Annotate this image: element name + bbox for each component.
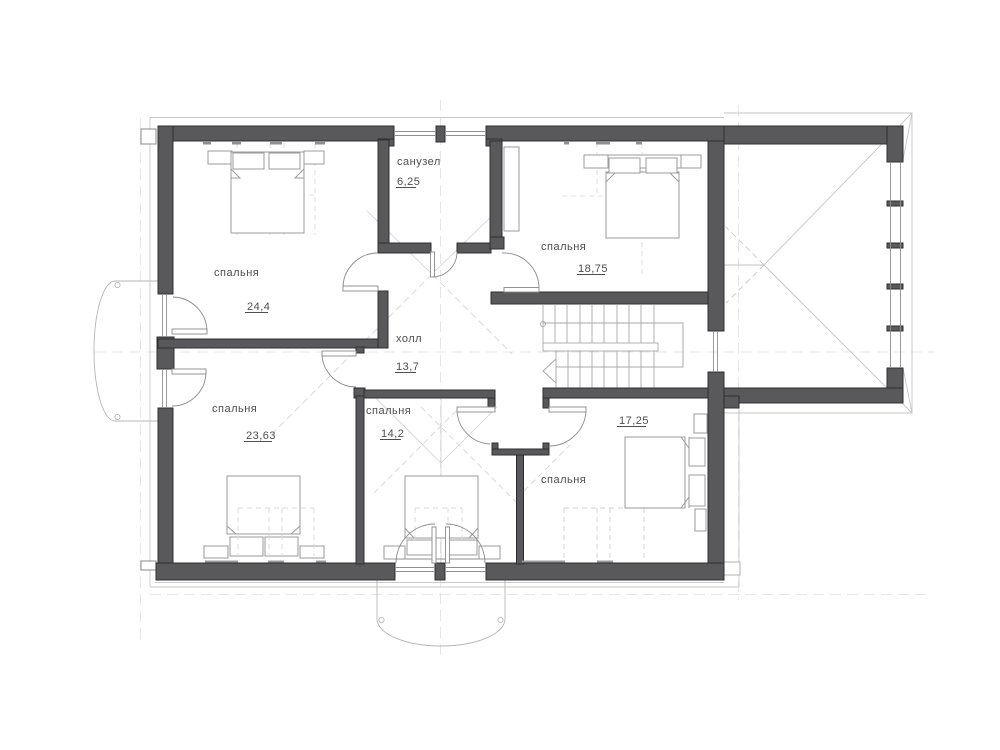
svg-text:спальня: спальня	[541, 241, 586, 253]
svg-text:6,25: 6,25	[397, 176, 420, 188]
svg-text:спальня: спальня	[214, 267, 259, 279]
svg-text:спальня: спальня	[366, 405, 411, 417]
svg-text:холл: холл	[396, 333, 422, 345]
svg-text:24,4: 24,4	[247, 301, 270, 313]
svg-text:13,7: 13,7	[396, 361, 419, 373]
svg-text:14,2: 14,2	[381, 428, 404, 440]
svg-text:18,75: 18,75	[578, 263, 608, 275]
svg-text:санузел: санузел	[397, 156, 441, 168]
svg-text:спальня: спальня	[212, 403, 257, 415]
svg-text:17,25: 17,25	[619, 415, 649, 427]
svg-text:спальня: спальня	[541, 474, 586, 486]
svg-text:23,63: 23,63	[246, 430, 276, 442]
